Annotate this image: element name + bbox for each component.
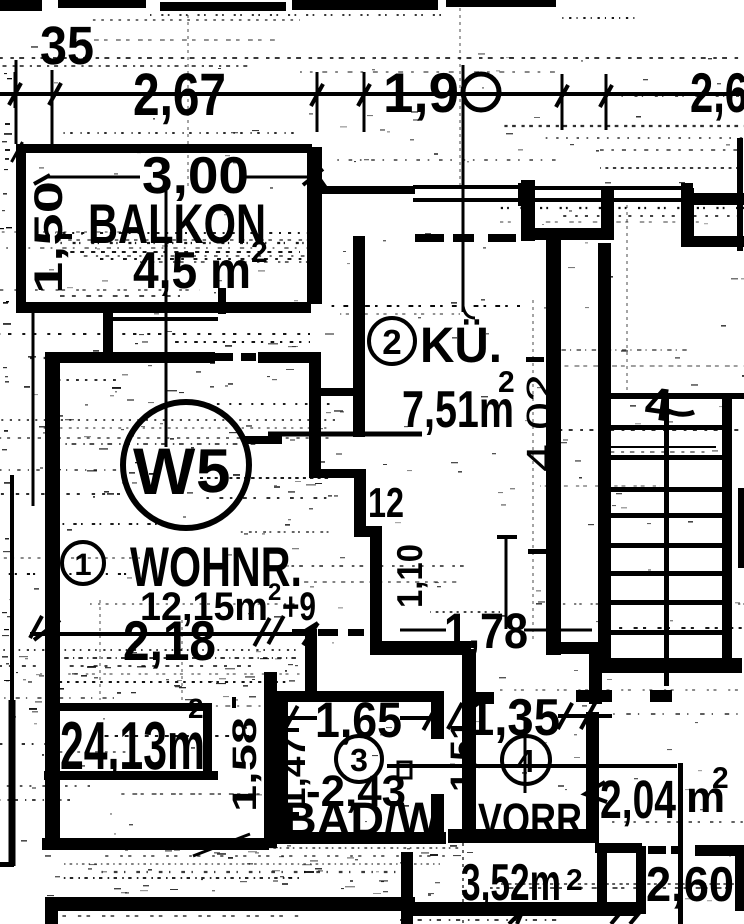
svg-text:2,67: 2,67 [133, 61, 226, 128]
svg-text:1,51: 1,51 [444, 719, 482, 792]
svg-text:35: 35 [40, 16, 94, 76]
svg-text:VORR: VORR [478, 795, 582, 844]
svg-text:2: 2 [268, 579, 281, 606]
svg-text:BAD/W: BAD/W [283, 792, 442, 845]
svg-text:2: 2 [382, 323, 401, 362]
svg-text:24,13m: 24,13m [60, 708, 205, 784]
svg-text:12: 12 [368, 479, 404, 526]
svg-text:2,18: 2,18 [123, 609, 216, 672]
svg-text:2: 2 [498, 366, 515, 399]
svg-text:2: 2 [188, 693, 204, 724]
svg-text:4,5 m: 4,5 m [133, 242, 251, 300]
svg-text:1: 1 [74, 547, 91, 582]
svg-text:2: 2 [712, 762, 729, 795]
svg-text:1,10: 1,10 [389, 544, 430, 608]
svg-text:2: 2 [566, 864, 583, 897]
svg-text:5: 5 [196, 437, 230, 506]
svg-text:1,58: 1,58 [226, 717, 264, 812]
svg-text:1,9: 1,9 [383, 61, 459, 124]
svg-text:+9: +9 [282, 585, 316, 629]
svg-text:W: W [133, 434, 196, 508]
svg-text:4,02: 4,02 [520, 374, 562, 472]
svg-text:1,65: 1,65 [315, 692, 402, 748]
svg-text:2,6: 2,6 [690, 61, 744, 124]
svg-text:KÜ.: KÜ. [420, 317, 502, 373]
